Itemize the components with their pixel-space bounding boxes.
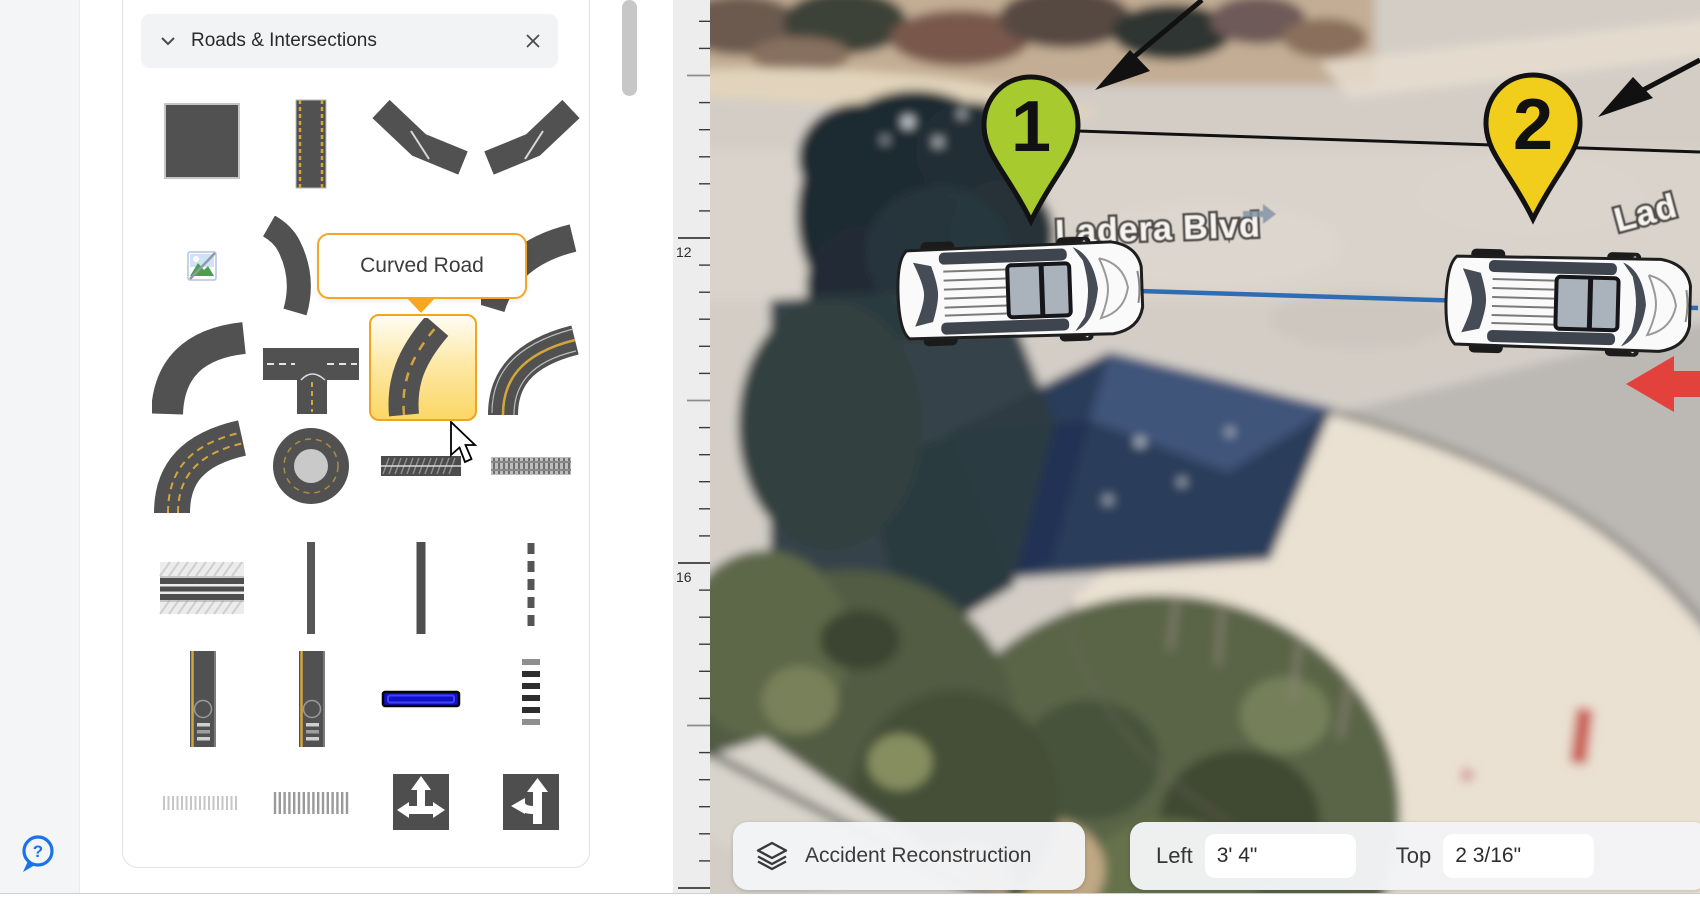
canvas-bottom-edge: [0, 893, 1700, 898]
svg-text:16: 16: [676, 569, 692, 585]
shape-intersection-arrows-4way[interactable]: [371, 752, 471, 852]
layer-button[interactable]: Accident Reconstruction: [733, 822, 1085, 890]
shape-tooltip: Curved Road: [317, 233, 527, 299]
drawing-canvas: 1216: [655, 0, 1700, 893]
close-icon[interactable]: [524, 32, 542, 50]
shape-library-panel: Roads & Intersections: [122, 0, 590, 868]
shape-road-section-square[interactable]: [152, 95, 252, 195]
svg-text:12: 12: [676, 244, 692, 260]
shape-speed-bump[interactable]: [371, 649, 471, 749]
shape-t-intersection[interactable]: [261, 318, 361, 418]
marker-2-number: 2: [1513, 85, 1553, 165]
shape-two-lane-road[interactable]: [261, 95, 361, 195]
shape-bent-road-up[interactable]: [481, 95, 581, 195]
shape-road-line-solid-2[interactable]: [371, 538, 471, 638]
top-field-input[interactable]: [1443, 834, 1594, 878]
position-toolbar: Left Top: [1130, 822, 1700, 890]
satellite-map[interactable]: Ladera Blvd Lad 1 2: [710, 0, 1700, 893]
shape-curved-road-45[interactable]: [481, 318, 581, 418]
shape-curved-road[interactable]: [371, 318, 471, 418]
car-1[interactable]: [896, 235, 1143, 347]
marker-1-number: 1: [1011, 87, 1051, 167]
mouse-cursor: [450, 421, 480, 472]
left-sidebar: ?: [0, 0, 80, 898]
shape-crosswalk[interactable]: [481, 649, 581, 749]
shape-image-placeholder[interactable]: [152, 216, 252, 316]
top-field-label: Top: [1396, 843, 1431, 869]
car-2[interactable]: [1445, 248, 1692, 358]
help-button[interactable]: ?: [18, 833, 58, 875]
shape-road-line-dashed[interactable]: [481, 538, 581, 638]
shape-bent-road-down[interactable]: [371, 95, 471, 195]
vertical-ruler: 1216: [673, 0, 710, 893]
left-field-input[interactable]: [1205, 834, 1356, 878]
shape-railroad-track[interactable]: [481, 416, 581, 516]
chevron-down-icon[interactable]: [157, 30, 179, 52]
panel-title: Roads & Intersections: [191, 30, 524, 52]
question-bubble-icon: ?: [18, 833, 58, 875]
shape-rumble-strip-dark[interactable]: [261, 752, 361, 852]
shape-rumble-strip-light[interactable]: [152, 752, 252, 852]
shape-roundabout[interactable]: [261, 416, 361, 516]
tooltip-pointer: [406, 297, 436, 313]
shape-ramp-road-right[interactable]: [261, 649, 361, 749]
shape-curved-road-double-yellow[interactable]: [152, 416, 252, 516]
shape-intersection-arrows-left-straight[interactable]: [481, 752, 581, 852]
shape-library-header: Roads & Intersections: [141, 14, 558, 68]
layer-name: Accident Reconstruction: [805, 844, 1031, 868]
shape-road-line-solid[interactable]: [261, 538, 361, 638]
left-field-label: Left: [1156, 843, 1193, 869]
shape-ramp-road-left[interactable]: [152, 649, 252, 749]
shape-curve-90-road[interactable]: [152, 318, 252, 418]
panel-scrollbar-thumb[interactable]: [622, 0, 637, 96]
svg-text:?: ?: [33, 842, 43, 861]
shape-highway-overpass[interactable]: [152, 538, 252, 638]
layers-icon: [755, 840, 789, 872]
